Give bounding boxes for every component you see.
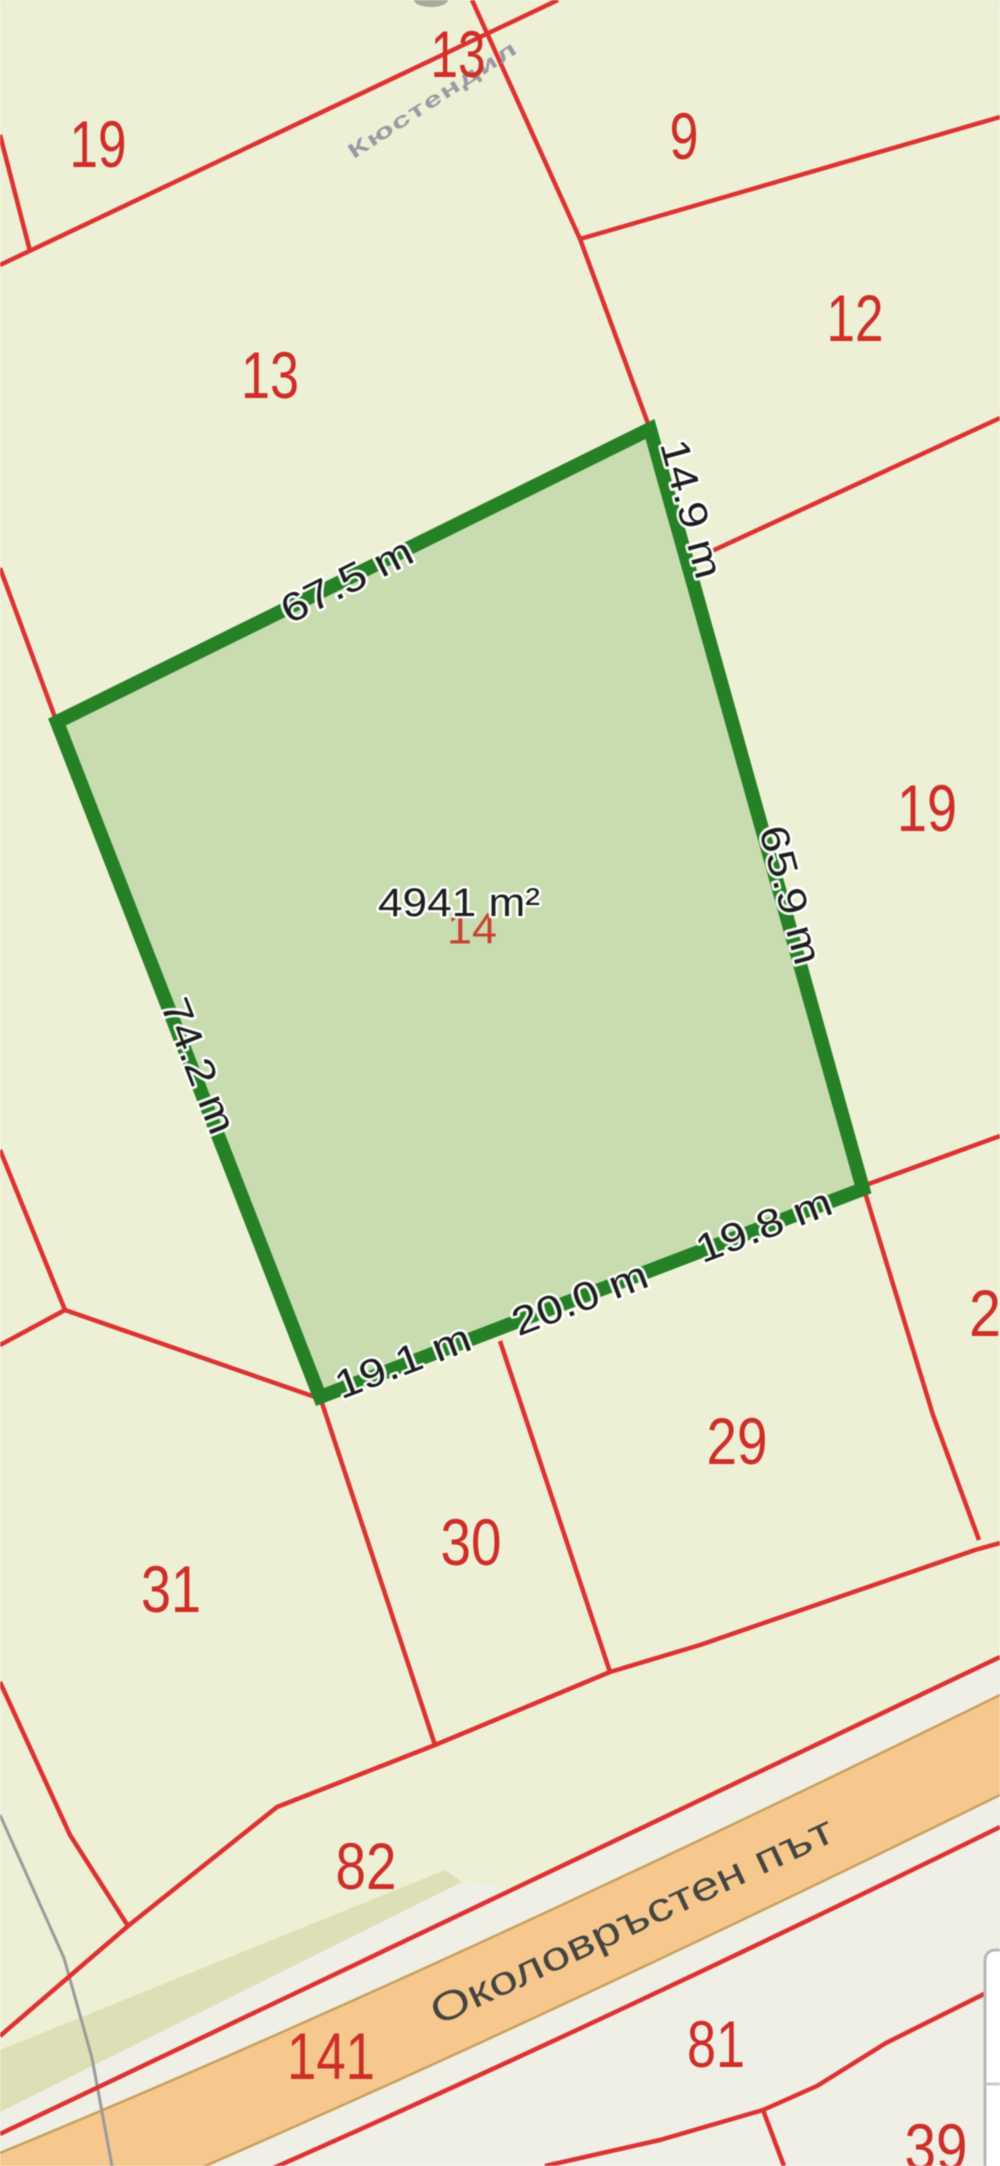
svg-text:2: 2 (969, 1276, 1000, 1350)
svg-text:141: 141 (287, 2019, 375, 2093)
svg-text:12: 12 (827, 281, 884, 355)
svg-text:39: 39 (905, 2110, 968, 2166)
svg-text:9: 9 (670, 99, 699, 173)
svg-text:30: 30 (441, 1505, 502, 1579)
svg-text:13: 13 (241, 338, 299, 412)
svg-text:81: 81 (687, 2007, 745, 2081)
svg-text:19: 19 (70, 107, 127, 181)
svg-text:31: 31 (141, 1552, 201, 1626)
svg-text:19: 19 (897, 771, 957, 845)
svg-text:29: 29 (707, 1404, 768, 1478)
svg-text:4941 m²: 4941 m² (378, 881, 540, 925)
svg-text:13: 13 (431, 17, 486, 91)
svg-text:82: 82 (336, 1829, 397, 1903)
